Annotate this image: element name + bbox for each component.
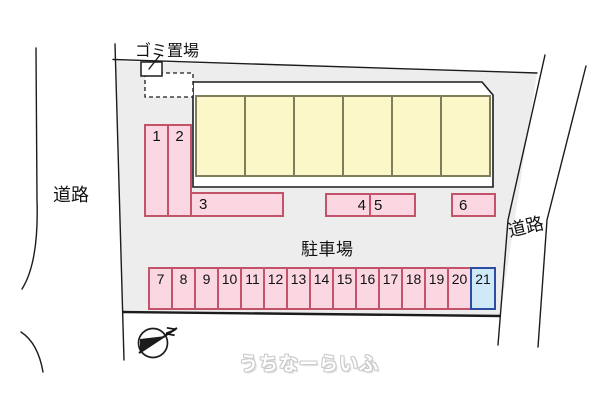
parking-stall-7: 7 [148,267,173,310]
parking-stall-14: 14 [309,267,334,310]
parking-stall-2: 2 [167,124,192,217]
stall-number: 10 [222,272,238,286]
stall-number: 18 [406,272,422,286]
stall-number: 3 [199,197,207,212]
stall-number: 13 [291,272,307,286]
watermark-text: うちなーらいふ [239,349,379,376]
stall-number: 19 [429,272,445,286]
parking-stall-12: 12 [263,267,288,310]
garbage-box [141,62,162,76]
parking-area-label: 駐車場 [301,235,354,260]
parking-stall-8: 8 [171,267,196,310]
building-unit [246,97,295,175]
building-unit [393,97,442,175]
stall-number: 17 [383,272,399,286]
parking-stall-10: 10 [217,267,242,310]
parking-site-plan: 1 2 3 4 5 6 7 8 9 10 11 12 13 14 15 16 1… [0,0,600,400]
parking-stall-15: 15 [332,267,357,310]
stall-number: 12 [268,272,284,286]
stall-number: 5 [374,198,382,213]
building-units-row [195,95,491,177]
building-unit [197,97,246,175]
parking-stall-6: 6 [451,193,496,217]
stall-number: 8 [180,272,188,286]
parking-stall-9: 9 [194,267,219,310]
stall-number: 14 [314,272,330,286]
stall-number: 1 [152,129,160,144]
parking-stall-20: 20 [447,267,472,310]
road-left-label: 道路 [53,181,89,207]
stall-number: 11 [245,272,260,286]
parking-stall-13: 13 [286,267,311,310]
garbage-area-label: ゴミ置場 [135,37,199,61]
stall-number: 21 [475,272,491,286]
stall-number: 20 [452,272,468,286]
road-left-corner-curve [21,332,43,372]
parking-stall-19: 19 [424,267,449,310]
stall-number: 9 [203,272,211,286]
parking-stall-18: 18 [401,267,426,310]
stall-number: 16 [360,272,376,286]
building-unit [295,97,344,175]
road-right-east-edge [538,66,586,347]
building-unit [344,97,393,175]
parking-stall-17: 17 [378,267,403,310]
parking-stall-4: 4 [325,193,371,217]
parking-stall-16: 16 [355,267,380,310]
stall-number: 15 [337,272,353,286]
stall-number: 7 [157,272,165,286]
site-plan-drawing [0,0,600,400]
building-unit [442,97,489,175]
parking-stall-3: 3 [190,192,284,217]
parking-stall-1: 1 [144,124,169,217]
parking-stall-5: 5 [369,193,416,217]
parking-stall-11: 11 [240,267,265,310]
parking-stall-21: 21 [470,267,496,310]
stall-number: 4 [358,198,366,213]
stall-number: 6 [459,198,467,213]
road-left-west-edge [22,48,37,289]
stall-number: 2 [175,129,183,144]
